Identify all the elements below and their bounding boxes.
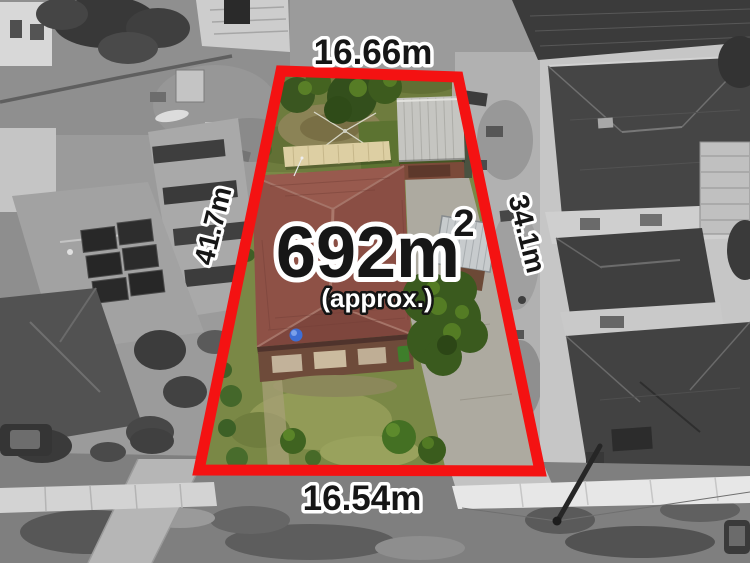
area-qualifier: (approx.) (321, 283, 432, 313)
parked-car-right (724, 520, 750, 554)
area-exponent: 2 (453, 203, 474, 245)
aerial-photo-scene: 16.66m 16.54m 41.7m 34.1m 692m 2 (approx… (0, 0, 750, 563)
parked-car-left (0, 424, 52, 456)
dimension-label-top: 16.66m (314, 33, 433, 72)
dimension-label-bottom: 16.54m (303, 479, 422, 518)
listing-aerial-photo: 16.66m 16.54m 41.7m 34.1m 692m 2 (approx… (0, 0, 750, 563)
green-wheelie-bin (397, 345, 410, 362)
area-label: 692m (276, 213, 460, 293)
garage (397, 96, 466, 180)
